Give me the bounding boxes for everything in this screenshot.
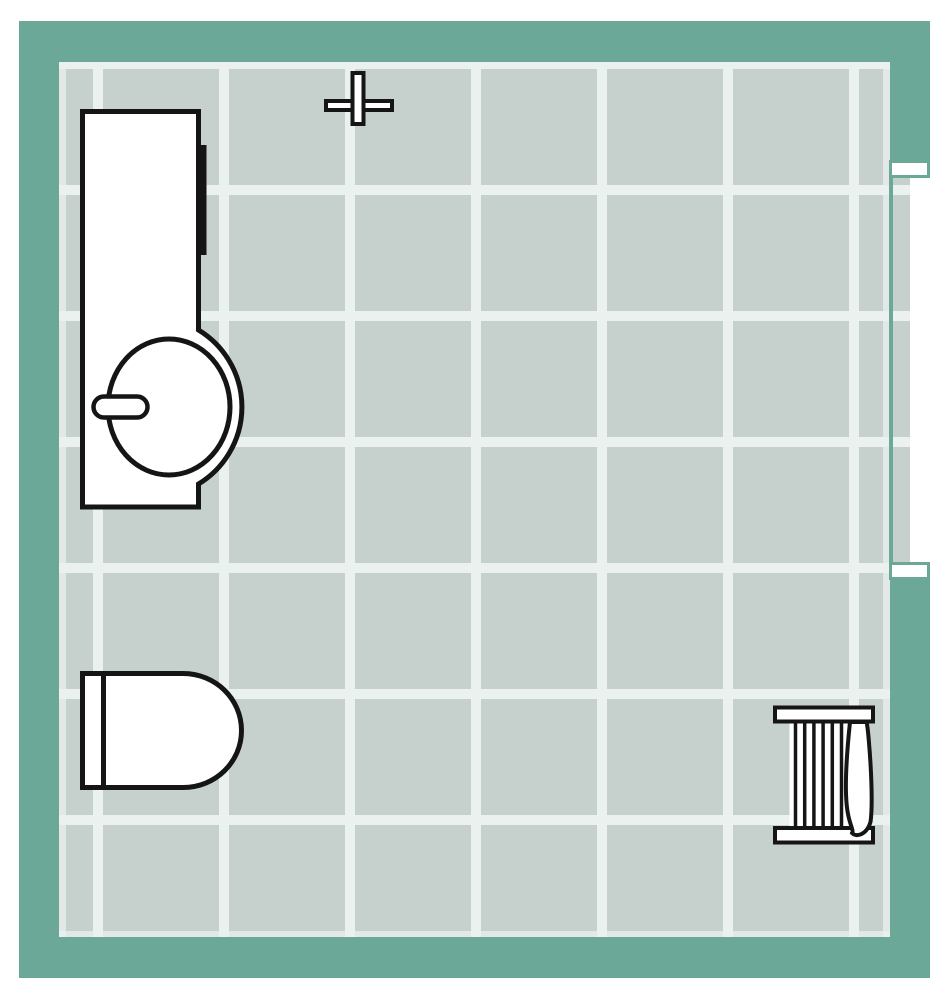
vanity-unit[interactable] xyxy=(83,112,242,508)
toilet-bowl[interactable] xyxy=(83,674,242,788)
hanging-towel xyxy=(846,722,872,835)
vanity-wall-bar xyxy=(198,145,207,255)
radiator-top-rail xyxy=(775,708,873,722)
floorplan-canvas xyxy=(0,0,951,1000)
towel-radiator[interactable] xyxy=(775,708,873,843)
cross-marker-icon[interactable] xyxy=(326,73,392,124)
fixtures-layer xyxy=(0,0,951,1000)
basin-tap xyxy=(94,397,148,418)
cross-vertical-bar xyxy=(353,73,364,124)
toilet[interactable] xyxy=(83,674,242,788)
